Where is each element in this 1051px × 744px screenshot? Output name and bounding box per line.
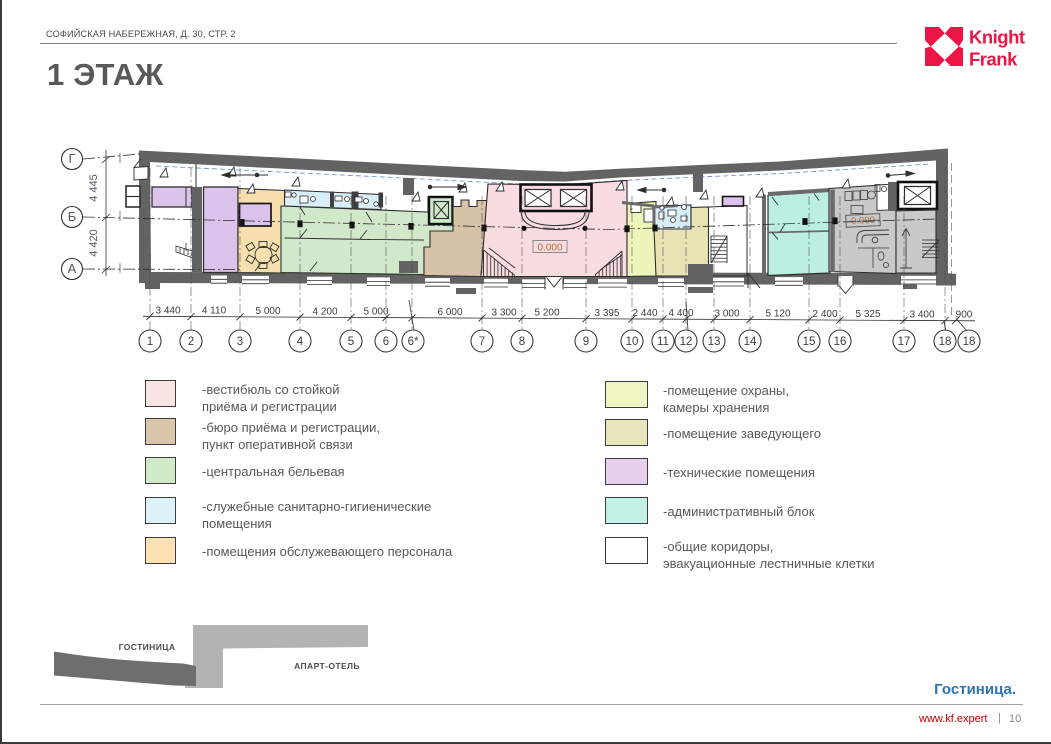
svg-text:18: 18: [939, 336, 952, 348]
svg-text:Б: Б: [68, 209, 77, 224]
svg-text:Г: Г: [68, 151, 75, 166]
svg-text:12: 12: [680, 336, 693, 348]
svg-text:ГОСТИНИЦА: ГОСТИНИЦА: [119, 642, 176, 652]
svg-text:14: 14: [744, 336, 757, 348]
svg-text:3 400: 3 400: [909, 310, 934, 321]
svg-text:7: 7: [479, 336, 485, 348]
svg-text:3: 3: [237, 336, 243, 348]
svg-text:3 300: 3 300: [491, 307, 516, 318]
svg-text:15: 15: [803, 336, 816, 348]
svg-text:3 440: 3 440: [155, 305, 180, 316]
svg-text:6 000: 6 000: [437, 307, 462, 318]
svg-text:18: 18: [963, 336, 976, 348]
svg-text:0.000: 0.000: [537, 243, 562, 254]
svg-text:11: 11: [657, 336, 669, 348]
svg-text:2: 2: [188, 336, 194, 348]
svg-text:4 445: 4 445: [88, 174, 100, 202]
svg-text:4 400: 4 400: [668, 308, 693, 319]
svg-text:6*: 6*: [408, 336, 419, 348]
svg-text:3 395: 3 395: [594, 308, 619, 319]
svg-text:1: 1: [147, 336, 153, 348]
svg-text:4 110: 4 110: [202, 306, 227, 317]
svg-text:8: 8: [519, 336, 525, 348]
svg-text:10: 10: [626, 336, 639, 348]
svg-text:2 400: 2 400: [812, 309, 837, 320]
svg-text:4 420: 4 420: [88, 229, 100, 257]
svg-text:АПАРТ-ОТЕЛЬ: АПАРТ-ОТЕЛЬ: [294, 661, 360, 671]
svg-text:900: 900: [956, 310, 973, 321]
svg-text:5 200: 5 200: [534, 308, 559, 319]
svg-text:3 000: 3 000: [714, 309, 739, 320]
svg-text:5 000: 5 000: [255, 306, 280, 317]
svg-text:4 200: 4 200: [312, 306, 337, 317]
svg-text:5: 5: [348, 336, 354, 348]
svg-text:5 120: 5 120: [765, 309, 790, 320]
svg-text:5 000: 5 000: [363, 307, 388, 318]
svg-text:17: 17: [898, 336, 911, 348]
svg-text:9: 9: [583, 336, 589, 348]
svg-text:4: 4: [297, 336, 304, 348]
svg-text:2 440: 2 440: [632, 308, 657, 319]
svg-text:13: 13: [708, 336, 721, 348]
svg-text:16: 16: [834, 336, 847, 348]
svg-text:А: А: [68, 261, 77, 276]
svg-text:6: 6: [383, 336, 389, 348]
svg-text:5 325: 5 325: [855, 309, 880, 320]
